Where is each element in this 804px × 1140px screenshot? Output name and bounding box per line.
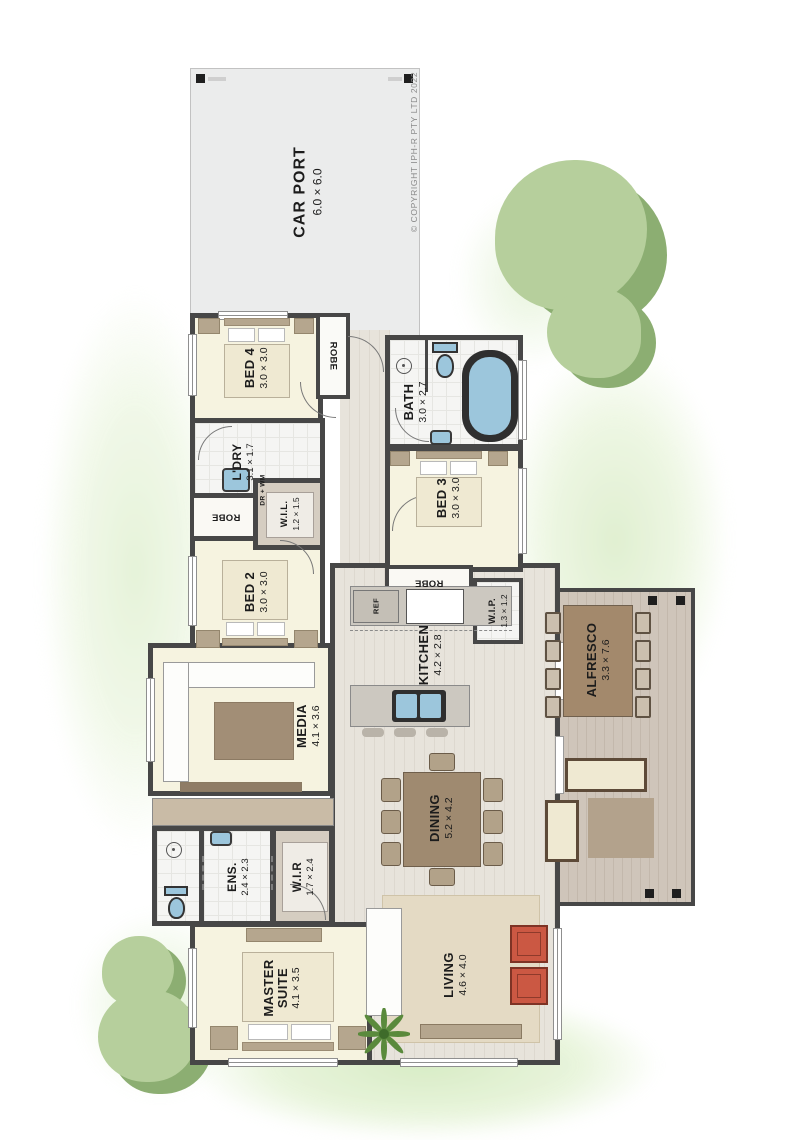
dining-chair xyxy=(381,842,401,866)
alfresco-post-top-2 xyxy=(676,596,685,605)
window xyxy=(146,678,155,762)
bed2-nightstand xyxy=(196,630,220,648)
window xyxy=(188,556,197,626)
alfresco-chair xyxy=(635,640,651,662)
media-label: MEDIA 4.1 × 3.6 xyxy=(294,704,322,748)
alfresco-chair xyxy=(545,668,561,690)
window xyxy=(518,360,527,440)
alfresco-chair xyxy=(635,612,651,634)
ens-toilet-bowl xyxy=(168,897,185,919)
living-sofa xyxy=(366,908,402,1016)
ens-label: ENS. 2.4 × 2.3 xyxy=(225,858,251,895)
alfresco-sofa xyxy=(565,758,647,792)
bed3-pillow xyxy=(420,461,447,475)
window xyxy=(188,948,197,1028)
bath-label: BATH 3.0 × 2.7 xyxy=(401,381,429,422)
kitchen-label: KITCHEN 4.2 × 2.8 xyxy=(416,625,444,686)
kitchen-stool xyxy=(426,728,448,737)
dr-wm-label: DR + WM xyxy=(260,474,267,505)
bed3-pillow xyxy=(450,461,477,475)
wip-label: W.I.P. 1.3 × 1.2 xyxy=(487,594,509,627)
alfresco-armchair xyxy=(545,800,579,862)
living-tv-unit xyxy=(420,1024,522,1039)
bed4-nightstand xyxy=(294,318,314,334)
alfresco-chair xyxy=(545,640,561,662)
alfresco-chair xyxy=(545,696,561,718)
window xyxy=(555,736,564,794)
ens-shower-head-icon xyxy=(166,842,182,858)
window xyxy=(553,928,562,1040)
bathtub-water xyxy=(469,357,511,435)
master-pillow xyxy=(291,1024,331,1040)
master-headboard xyxy=(242,1042,334,1051)
living-armchair-red xyxy=(510,967,548,1005)
wir-label: W.I.R 1.7 × 2.4 xyxy=(292,858,316,895)
window xyxy=(188,334,197,396)
bed4-label: BED 4 3.0 × 3.0 xyxy=(242,347,270,388)
ens-cavity-slider xyxy=(202,856,204,890)
dining-chair xyxy=(429,753,455,771)
plant-icon xyxy=(358,1008,410,1060)
robe-bed2-label: ROBE xyxy=(212,512,241,523)
master-label: MASTER SUITE 4.1 × 3.5 xyxy=(262,950,302,1026)
living-armchair-red xyxy=(510,925,548,963)
dining-chair xyxy=(381,778,401,802)
ens-vanity-sink xyxy=(210,831,232,846)
master-pillow xyxy=(248,1024,288,1040)
hall-nook xyxy=(152,798,334,826)
alfresco-post-bottom-1 xyxy=(645,889,654,898)
wir-cavity-slider xyxy=(271,856,273,890)
bed4-pillow xyxy=(258,328,285,342)
alfresco-chair xyxy=(545,612,561,634)
bush-bottom xyxy=(98,990,196,1082)
dining-label: DINING 5.2 × 4.2 xyxy=(427,794,455,842)
tree-small xyxy=(547,288,641,378)
cooktop xyxy=(406,589,464,624)
island-sink-bowl xyxy=(396,694,417,718)
ldry-label: L'DRY 3.1 × 1.7 xyxy=(230,443,256,480)
copyright-text: © COPYRIGHT IPH-R PTY LTD 2022 xyxy=(409,72,419,232)
bed4-nightstand xyxy=(198,318,220,334)
alfresco-chair xyxy=(635,668,651,690)
bed3-nightstand xyxy=(488,451,508,466)
bed2-pillow xyxy=(257,622,285,636)
alfresco-post-top-1 xyxy=(648,596,657,605)
bath-toilet-tank xyxy=(432,342,458,353)
kitchen-stool xyxy=(362,728,384,737)
bed2-label: BED 2 3.0 × 3.0 xyxy=(242,571,270,612)
window xyxy=(400,1058,518,1067)
alfresco-rug xyxy=(588,798,654,858)
dining-chair xyxy=(381,810,401,834)
media-sofa-left xyxy=(163,662,189,782)
alfresco-chair xyxy=(635,696,651,718)
bed3-headboard xyxy=(416,451,482,459)
master-wardrobe xyxy=(246,928,322,942)
ref-label: REF xyxy=(372,598,381,614)
bed2-pillow xyxy=(226,622,254,636)
alfresco-label: ALFRESCO 3.3 × 7.6 xyxy=(584,623,612,698)
bed3-nightstand xyxy=(390,451,410,466)
bath-toilet-bowl xyxy=(436,354,454,378)
media-tv-unit xyxy=(180,782,302,792)
dining-chair xyxy=(429,868,455,886)
media-rug xyxy=(214,702,294,760)
dining-chair xyxy=(483,778,503,802)
window xyxy=(228,1058,338,1067)
window xyxy=(518,468,527,554)
wil-label: W.I.L. 1.2 × 1.5 xyxy=(279,497,301,530)
bath-vanity-sink xyxy=(430,430,452,445)
bed2-nightstand xyxy=(294,630,318,648)
robe-bed3-label: ROBE xyxy=(415,578,444,589)
island-sink-bowl xyxy=(420,694,441,718)
carport-post-left-tie xyxy=(208,77,226,81)
bed4-pillow xyxy=(228,328,255,342)
bed2-headboard xyxy=(222,638,288,646)
robe-bed4-label: ROBE xyxy=(328,342,339,371)
ens-toilet-tank xyxy=(164,886,188,896)
shower-head-icon xyxy=(396,358,412,374)
carport-label: CAR PORT 6.0 × 6.0 xyxy=(292,146,325,238)
bed3-label: BED 3 3.0 × 3.0 xyxy=(434,477,462,518)
dining-chair xyxy=(483,842,503,866)
carport-post-right-tie xyxy=(388,77,402,81)
bed4-headboard xyxy=(224,318,290,326)
living-label: LIVING 4.6 × 4.0 xyxy=(441,952,469,998)
kitchen-stool xyxy=(394,728,416,737)
master-nightstand xyxy=(210,1026,238,1050)
alfresco-post-bottom-2 xyxy=(672,889,681,898)
carport-post-left xyxy=(196,74,205,83)
dining-chair xyxy=(483,810,503,834)
